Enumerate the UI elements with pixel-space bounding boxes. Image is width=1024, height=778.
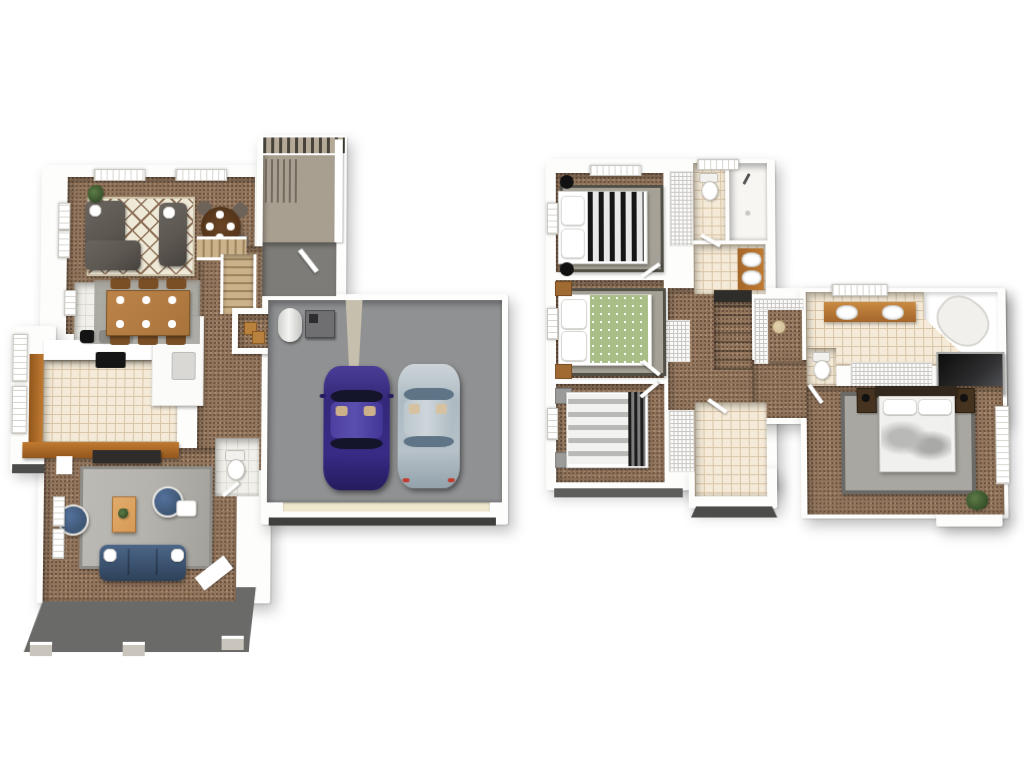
bed-pillow [561,196,585,226]
black-nightstand [560,175,574,189]
patio-footing [221,636,243,650]
place-setting [142,320,150,328]
laundry-floor [694,402,767,496]
bar-stool [80,330,95,343]
car-rear-window [330,438,382,449]
bedroom-1-top-window [590,165,642,176]
side-table [176,500,196,516]
slat-headboard [628,392,645,466]
master-closet-shelves [850,362,932,388]
bedroom-2-window [547,308,558,340]
living-window [175,169,227,181]
family-side-window [53,496,65,526]
place-setting [206,223,214,231]
bed-pillow [561,331,587,361]
master-bedroom-window [995,406,1010,484]
patio-footing [30,642,52,656]
car-rear-window [404,436,454,447]
wall-cabinet [56,456,72,474]
car-seat [436,404,447,414]
vanity-sink [742,270,762,285]
place-setting [216,211,224,219]
place-setting [168,296,176,304]
dining-side-window [64,290,76,316]
master-plant [966,490,988,510]
kitchen-cabinet-left [28,354,43,450]
perspective-wrapper [0,4,1024,778]
wooden-crate [252,331,265,344]
car-seat [336,406,348,416]
place-setting [116,296,124,304]
patio-footing [123,642,145,656]
garage-door-threshold [283,502,490,511]
bed-pillow [918,399,952,415]
bed-pillow [883,399,917,415]
kitchen-sink [172,352,196,380]
vanity-sink [742,252,762,267]
hamper [772,320,786,334]
floorplan-scene [0,0,1024,778]
family-side-window [52,529,64,559]
silver-sedan [398,364,460,488]
purple-sedan [323,366,390,490]
nightstand-lamp [862,394,870,402]
living-side-window [58,203,70,231]
car-seat [409,404,420,414]
sofa-cushion-seam [156,549,158,575]
sofa-cushion-seam [127,549,129,575]
car-seat [364,406,376,416]
bed-pillow [561,299,587,329]
place-setting [227,223,235,231]
throw-pillow [89,205,101,217]
master-sink [836,305,858,320]
sofa-pillow [171,549,184,562]
stairwell-void [714,290,752,302]
water-heater [278,308,302,342]
shower-drain [745,211,750,216]
tv-console [92,450,160,463]
place-setting [142,296,150,304]
wood-nightstand [555,364,572,379]
bed-pillow [561,229,585,259]
garage-under-slab [269,518,496,526]
kitchen-window [12,386,28,434]
deck-bench-slats [265,159,301,203]
living-window [94,169,146,181]
master-sink [882,305,904,320]
nightstand-lamp [960,394,968,402]
place-setting [116,320,124,328]
place-setting [168,320,176,328]
stair-lower-run [220,254,256,314]
master-bath-window [832,284,888,296]
coffee-table-plant [118,508,128,518]
car-mirror [320,394,326,398]
bedroom-3-window [547,408,558,440]
cooktop [96,352,126,368]
kitchen-window [12,334,28,382]
furnace-detail [309,314,318,323]
bedroom-1-closet [669,171,693,246]
gray-striped-duvet [568,394,628,464]
sectional-chaise [85,240,141,270]
deck-railing [334,139,342,242]
car-taillight [448,478,455,482]
left-wing-under-slab [554,488,683,497]
green-duvet [590,295,648,363]
master-duvet [881,417,952,469]
master-toilet [813,360,830,380]
bedroom-1-window [547,203,558,235]
car-mirror [388,394,394,398]
sofa-pillow [103,549,116,562]
wood-nightstand [555,281,572,296]
dining-chair [110,278,130,289]
black-nightstand [560,262,574,276]
living-side-window [58,230,70,258]
dining-chair [138,278,158,289]
throw-pillow [163,207,175,219]
walk-in-shelves-top [754,298,804,310]
car-taillight [403,478,410,482]
striped-duvet [588,192,644,261]
hall-toilet [701,181,718,201]
dining-chair [166,278,186,289]
upper-stairs-treads [714,302,752,370]
toilet [227,459,245,480]
linen-closet [664,320,690,362]
bath-top-window [697,159,739,170]
laundry-under-slab [691,506,777,517]
